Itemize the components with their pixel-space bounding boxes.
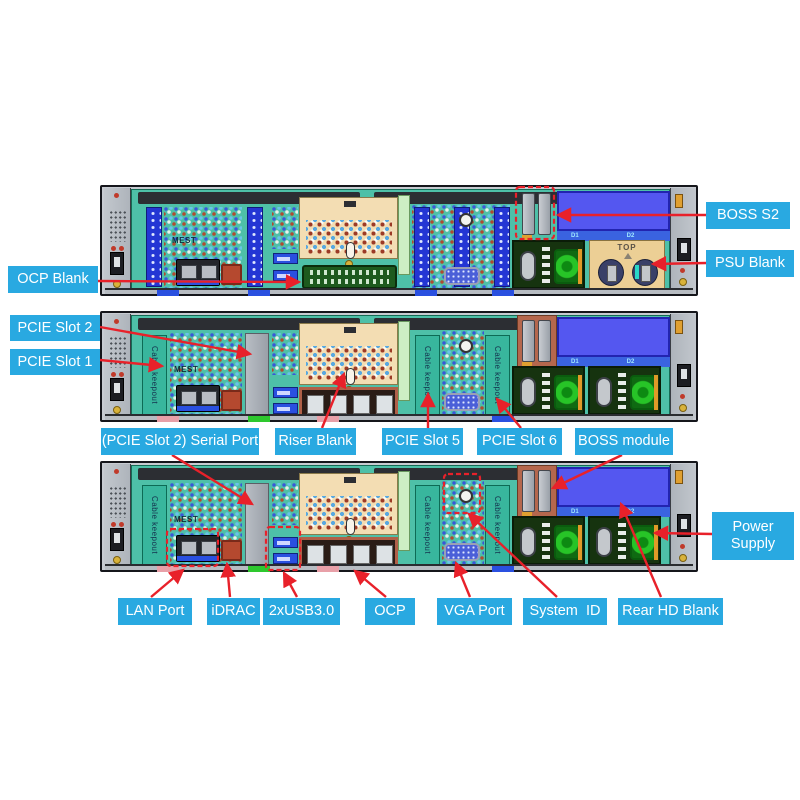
thumbscrew bbox=[113, 406, 121, 414]
toggle-switch bbox=[677, 238, 691, 261]
idrac-port-graphic bbox=[221, 540, 242, 561]
riser-card bbox=[299, 323, 398, 385]
psu-module-graphic bbox=[512, 240, 585, 289]
diagram-canvas: MEST D1D2 TOP bbox=[0, 0, 800, 800]
callout-ocp: OCP bbox=[365, 598, 415, 625]
lan-ports-graphic bbox=[176, 259, 220, 286]
foot-tab bbox=[492, 290, 514, 296]
psu-connector bbox=[554, 249, 580, 284]
usb-port-graphic bbox=[273, 403, 298, 414]
bottom-rail bbox=[105, 414, 693, 420]
toggle-switch bbox=[677, 514, 691, 537]
idrac-port-graphic bbox=[221, 390, 242, 411]
psu-module-graphic bbox=[512, 366, 585, 415]
callout-boss-module: BOSS module bbox=[575, 428, 673, 455]
callout-pcie-slot-1: PCIE Slot 1 bbox=[10, 349, 100, 375]
mest-marking: MEST bbox=[174, 365, 198, 374]
lan-ports-graphic bbox=[176, 385, 220, 412]
foot-tab bbox=[492, 566, 514, 572]
boss-module-graphic bbox=[517, 315, 557, 368]
rear-hd-blank-graphic bbox=[557, 467, 670, 507]
thumbscrew bbox=[113, 280, 121, 288]
usb-port-graphic bbox=[273, 253, 298, 264]
usb-port-graphic bbox=[273, 387, 298, 398]
thumbscrew bbox=[113, 556, 121, 564]
boss-module-graphic bbox=[517, 465, 557, 518]
vent-pattern bbox=[109, 486, 127, 518]
vga-port-graphic bbox=[444, 267, 480, 285]
toggle-switch bbox=[110, 528, 124, 551]
toggle-switch bbox=[110, 252, 124, 275]
callout-pcie-slot-6: PCIE Slot 6 bbox=[477, 428, 562, 455]
psu-connector bbox=[554, 375, 580, 410]
callout-idrac: iDRAC bbox=[207, 598, 260, 625]
callout-boss-s2: BOSS S2 bbox=[706, 202, 790, 229]
foot-tab bbox=[157, 416, 179, 422]
psu-module-graphic bbox=[588, 366, 661, 415]
psu-blank-graphic: TOP bbox=[589, 240, 665, 290]
psu-connector bbox=[630, 525, 656, 560]
vent-pattern bbox=[109, 336, 127, 368]
pcie-slot-graphic bbox=[146, 207, 162, 287]
chassis-ear-left bbox=[104, 188, 131, 292]
foot-tab bbox=[492, 416, 514, 422]
guide-strip bbox=[398, 471, 410, 551]
callout-pcie-slot-2: PCIE Slot 2 bbox=[10, 315, 100, 341]
toggle-switch bbox=[110, 378, 124, 401]
callout-rear-hd-blank: Rear HD Blank bbox=[618, 598, 723, 625]
callout-usb: 2xUSB3.0 bbox=[263, 598, 340, 625]
boss-s2-module-graphic bbox=[522, 193, 535, 235]
foot-tab bbox=[317, 416, 339, 422]
mest-marking: MEST bbox=[172, 236, 196, 245]
arrow-usb bbox=[284, 573, 297, 597]
callout-pcie-slot-5: PCIE Slot 5 bbox=[382, 428, 463, 455]
perforation-area bbox=[272, 333, 298, 375]
psu-connector bbox=[554, 525, 580, 560]
callout-system-id: System ID bbox=[523, 598, 607, 625]
usb-port-graphic bbox=[273, 537, 298, 548]
vga-port-graphic bbox=[444, 393, 480, 411]
cable-keepout-strip: Cable keepout area bbox=[485, 485, 510, 565]
vent-pattern bbox=[109, 210, 127, 242]
foot-tab bbox=[248, 566, 270, 572]
cable-keepout-strip: Cable keepout area bbox=[142, 485, 167, 565]
perforation-area bbox=[272, 207, 298, 249]
chassis-ear-right bbox=[670, 464, 696, 568]
guide-strip bbox=[398, 195, 410, 275]
thumbscrew bbox=[679, 404, 687, 412]
guide-strip bbox=[398, 321, 410, 401]
cable-keepout-strip: Cable keepout area bbox=[485, 335, 510, 415]
cable-keepout-strip: Cable keepout area bbox=[142, 335, 167, 415]
cable-keepout-strip: Cable keepout area bbox=[415, 335, 440, 415]
pcie-slot-graphic bbox=[247, 207, 263, 287]
riser-card bbox=[299, 197, 398, 259]
foot-tab bbox=[157, 290, 179, 296]
usb-port-graphic bbox=[273, 553, 298, 564]
thumbscrew bbox=[679, 278, 687, 286]
foot-tab bbox=[415, 290, 437, 296]
foot-tab bbox=[317, 566, 339, 572]
callout-ocp-blank: OCP Blank bbox=[8, 266, 98, 293]
rear-view-bottom: Cable keepout area MEST Cable keepout ar… bbox=[100, 461, 698, 572]
callout-vga-port: VGA Port bbox=[437, 598, 512, 625]
idrac-port-graphic bbox=[221, 264, 242, 285]
boss-s2-module-graphic bbox=[538, 193, 551, 235]
top-marking: TOP bbox=[590, 243, 664, 252]
toggle-switch bbox=[677, 364, 691, 387]
psu-module-graphic bbox=[588, 516, 661, 565]
psu-connector bbox=[630, 375, 656, 410]
riser-card bbox=[299, 473, 398, 535]
vga-port-graphic bbox=[444, 543, 480, 561]
rear-view-middle: Cable keepout area MEST Cable keepout ar… bbox=[100, 311, 698, 422]
cable-keepout-strip: Cable keepout area bbox=[415, 485, 440, 565]
arrow-ocp bbox=[355, 571, 386, 597]
riser-blank-graphic bbox=[245, 333, 269, 415]
callout-riser-blank: Riser Blank bbox=[275, 428, 356, 455]
rear-hd-blank-graphic bbox=[557, 191, 670, 231]
foot-tab bbox=[248, 416, 270, 422]
riser-blank-graphic bbox=[245, 483, 269, 565]
pcie-slot-graphic bbox=[494, 207, 510, 287]
system-id-button-graphic bbox=[459, 489, 473, 503]
chassis-ear-right bbox=[670, 188, 696, 292]
chassis-ear-left bbox=[104, 464, 131, 568]
foot-tab bbox=[157, 566, 179, 572]
rear-hd-blank-graphic bbox=[557, 317, 670, 357]
arrow-lan-port bbox=[151, 570, 183, 597]
pcie-slot-graphic bbox=[414, 207, 430, 287]
rear-view-top: MEST D1D2 TOP bbox=[100, 185, 698, 296]
bottom-rail bbox=[105, 288, 693, 294]
ocp-blank-connector bbox=[302, 265, 397, 289]
callout-serial-port: (PCIE Slot 2) Serial Port bbox=[101, 428, 259, 455]
thumbscrew bbox=[679, 554, 687, 562]
psu-module-graphic bbox=[512, 516, 585, 565]
chassis-ear-right bbox=[670, 314, 696, 418]
mest-marking: MEST bbox=[174, 515, 198, 524]
callout-psu-blank: PSU Blank bbox=[706, 250, 794, 277]
bottom-rail bbox=[105, 564, 693, 570]
chassis-ear-left bbox=[104, 314, 131, 418]
system-id-button-graphic bbox=[459, 339, 473, 353]
usb-port-graphic bbox=[273, 270, 298, 281]
lan-ports-graphic bbox=[176, 535, 220, 562]
foot-tab bbox=[248, 290, 270, 296]
perforation-area bbox=[272, 483, 298, 525]
callout-power-supply: Power Supply bbox=[712, 512, 794, 560]
callout-lan-port: LAN Port bbox=[118, 598, 192, 625]
system-id-button-graphic bbox=[459, 213, 473, 227]
